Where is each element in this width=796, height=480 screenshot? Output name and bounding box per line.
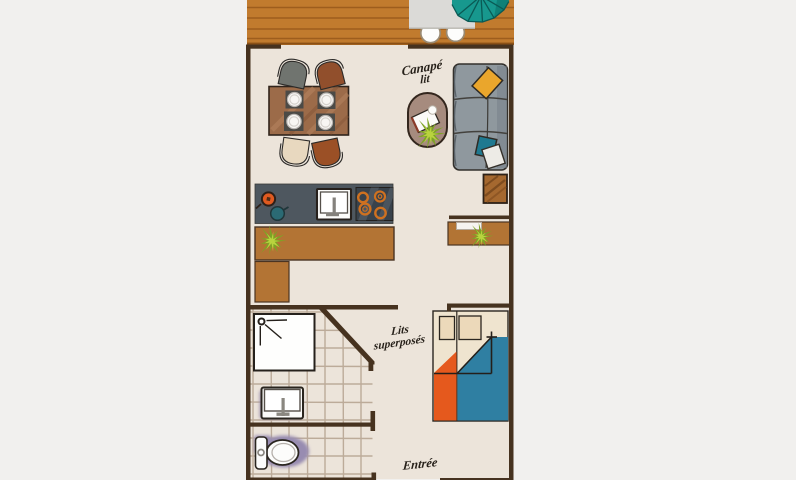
- svg-text:lit: lit: [420, 72, 430, 87]
